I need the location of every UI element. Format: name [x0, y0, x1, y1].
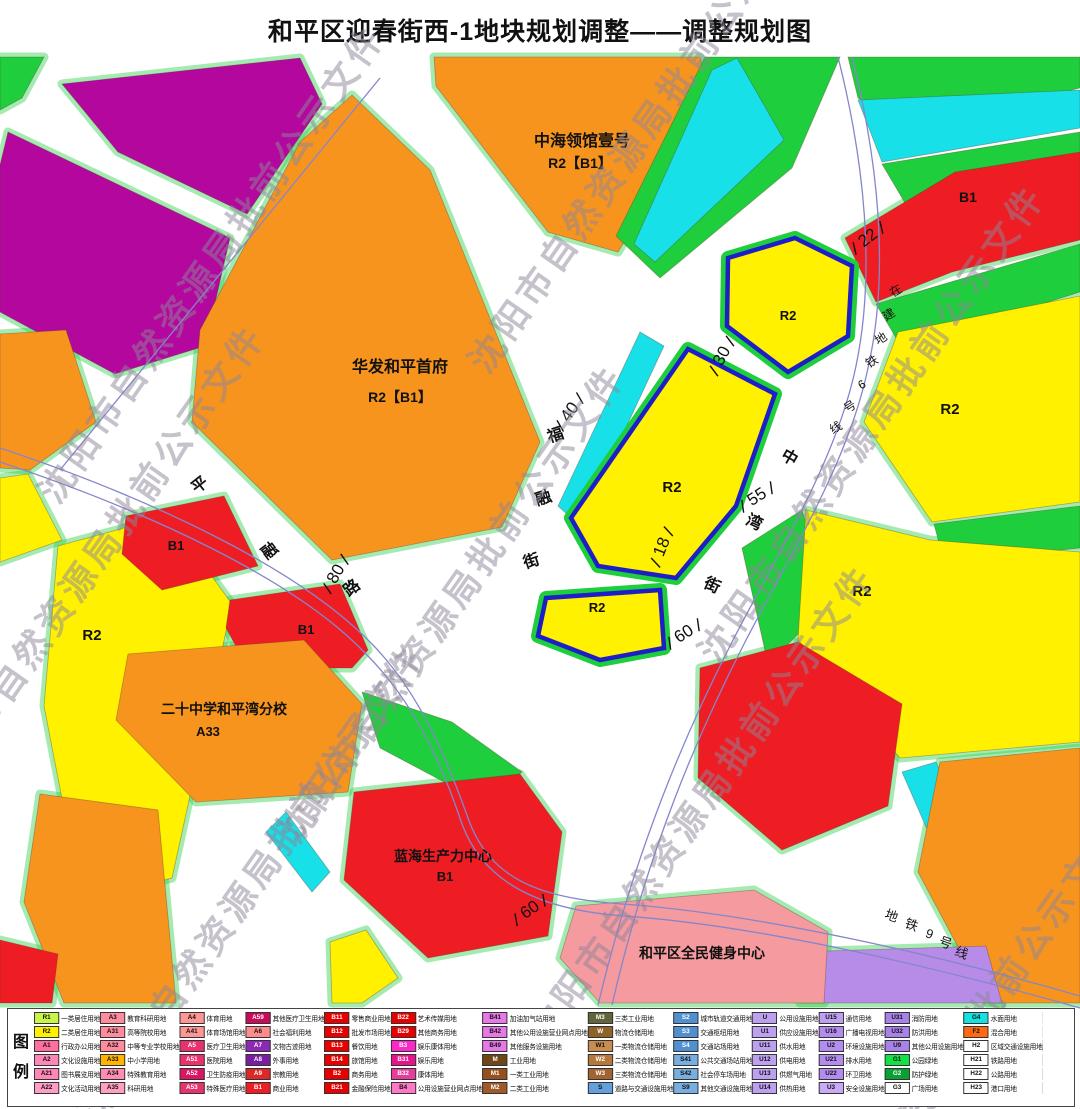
legend-item: G1公园绿地: [884, 1054, 963, 1066]
legend-item: B1商业用地: [245, 1082, 324, 1094]
legend-label: 文化活动用地: [61, 1083, 100, 1093]
page-title: 和平区迎春街西-1地块规划调整——调整规划图: [0, 12, 1080, 48]
legend-item: U11供水用地: [752, 1040, 818, 1052]
legend-item: F2混合用地: [964, 1026, 1043, 1038]
legend-swatch-A9: A9: [245, 1068, 270, 1080]
legend-title-char: 例: [13, 1065, 29, 1081]
legend-swatch-B3: B3: [391, 1040, 416, 1052]
parcel-label: 中海领馆壹号: [534, 131, 630, 150]
legend-swatch-B32: B32: [391, 1068, 416, 1080]
legend-label: 其他交通设施用地: [700, 1083, 752, 1093]
legend-label: 零售商业用地: [352, 1013, 391, 1023]
legend-item: S42社会停车场用地: [673, 1068, 752, 1080]
legend-swatch-G1: G1: [884, 1054, 909, 1066]
legend-swatch-S4: S4: [673, 1040, 698, 1052]
legend-label: 加油加气站用地: [510, 1013, 555, 1023]
legend-swatch-F2: F2: [964, 1026, 989, 1038]
street-label: 融: [533, 487, 554, 509]
legend-item: B3娱乐康体用地: [391, 1040, 483, 1052]
legend-item: B11零售商业用地: [324, 1012, 390, 1024]
dimension-tick: [577, 392, 584, 403]
legend-item: U31消防用地: [884, 1012, 963, 1024]
parcel-label: B1: [298, 622, 315, 637]
legend-label: 社会福利用地: [272, 1027, 311, 1037]
legend-swatch-A31: A31: [100, 1026, 125, 1038]
legend-label: 消防用地: [912, 1013, 938, 1023]
cyan-band: [266, 812, 330, 892]
legend-swatch-A52: A52: [179, 1068, 204, 1080]
street-label: 中: [778, 445, 801, 469]
legend-item: A32中等专业学校用地: [100, 1040, 179, 1052]
legend-swatch-B21: B21: [324, 1082, 349, 1094]
legend-swatch-B42: B42: [483, 1026, 508, 1038]
legend-column: B11零售商业用地B12批发市场用地B13餐饮用地B14旅馆用地B2商务用地B2…: [324, 1012, 390, 1104]
legend-item: S9其他交通设施用地: [673, 1082, 752, 1094]
legend-item: S3交通枢纽用地: [673, 1026, 752, 1038]
legend-column: A59其他医疗卫生用地A6社会福利用地A7文物古迹用地A8外事用地A9宗教用地B…: [245, 1012, 324, 1104]
street-label: 融: [258, 539, 282, 563]
legend-label: 餐饮用地: [352, 1041, 378, 1051]
legend-label: 图书展览用地: [61, 1069, 100, 1079]
legend-label: 体育场馆用地: [206, 1027, 245, 1037]
metro-label: 地: [883, 906, 900, 925]
legend-swatch-A33: A33: [100, 1054, 125, 1066]
parcel-label: B1: [959, 189, 977, 205]
legend-label: 供热用地: [779, 1083, 805, 1093]
legend-item: U32防洪用地: [884, 1026, 963, 1038]
legend-item: S41公共交通场站用地: [673, 1054, 752, 1066]
legend-swatch-M3: M3: [588, 1012, 613, 1024]
legend-label: 一类工业用地: [510, 1069, 549, 1079]
legend-label: 医疗卫生用地: [206, 1041, 245, 1051]
legend-item: M3三类工业用地: [588, 1012, 674, 1024]
legend-item: U14供热用地: [752, 1082, 818, 1094]
legend-swatch-H22: H22: [964, 1068, 989, 1080]
road-width-label: 60: [671, 620, 697, 646]
legend-swatch-A1: A1: [34, 1040, 59, 1052]
legend-label: 供水用地: [779, 1041, 805, 1051]
legend-column: U15通信用地U16广播电视用地U2环境设施用地U21排水用地U22环卫用地U3…: [818, 1012, 884, 1104]
legend-label: 其他医疗卫生用地: [272, 1013, 324, 1023]
legend-label: 交通站场用地: [700, 1041, 739, 1051]
legend-label: 教育科研用地: [127, 1013, 166, 1023]
legend-swatch-B12: B12: [324, 1026, 349, 1038]
legend-label: 其他公用设施用地: [912, 1041, 964, 1051]
legend-label: 三类工业用地: [615, 1013, 654, 1023]
legend-label: 社会停车场用地: [700, 1069, 745, 1079]
legend-label: 二类居住用地: [61, 1027, 100, 1037]
legend-item: A9宗教用地: [245, 1068, 324, 1080]
legend-item: H23港口用地: [964, 1082, 1043, 1094]
metro-label: 9: [924, 925, 936, 942]
legend-item: W3三类物流仓储用地: [588, 1068, 674, 1080]
legend-label: 卫生防疫用地: [206, 1069, 245, 1079]
legend-item: U公用设施用地: [752, 1012, 818, 1024]
legend-item: U2环境设施用地: [818, 1040, 884, 1052]
legend-swatch-U: U: [752, 1012, 777, 1024]
parcel-label: R2: [780, 308, 797, 323]
planning-map: 中海领馆壹号R2【B1】华发和平首府R2【B1】R2R2R2R2R2R2B1B1…: [0, 0, 1080, 1109]
legend-item: B41加油加气站用地: [483, 1012, 588, 1024]
legend-item: W物流仓储用地: [588, 1026, 674, 1038]
legend-label: 特殊教育用地: [127, 1069, 166, 1079]
parcel-yellow-bl: [330, 930, 398, 1003]
street-label: 街: [520, 549, 542, 572]
legend-label: 区域交通设施用地: [991, 1041, 1043, 1051]
legend-item: U22环卫用地: [818, 1068, 884, 1080]
legend-swatch-H2: H2: [964, 1040, 989, 1052]
legend-label: 公路用地: [991, 1069, 1017, 1079]
legend-item: B21金融保险用地: [324, 1082, 390, 1094]
legend-swatch-B41: B41: [483, 1012, 508, 1024]
legend-swatch-B1: B1: [245, 1082, 270, 1094]
legend-item: U12供电用地: [752, 1054, 818, 1066]
legend-swatch-B14: B14: [324, 1054, 349, 1066]
legend-column: U公用设施用地U1供应设施用地U11供水用地U12供电用地U13供燃气用地U14…: [752, 1012, 818, 1104]
legend-item: A3教育科研用地: [100, 1012, 179, 1024]
dimension-tick: [697, 618, 699, 631]
legend-item: S道路与交通设施用地: [588, 1082, 674, 1094]
legend-label: 科研用地: [127, 1083, 153, 1093]
legend-item: B12批发市场用地: [324, 1026, 390, 1038]
legend-swatch-U13: U13: [752, 1068, 777, 1080]
legend-swatch-R1: R1: [34, 1012, 59, 1024]
legend-label: 三类物流仓储用地: [615, 1069, 667, 1079]
legend-column: G4水面用地F2混合用地H2区域交通设施用地H21铁路用地H22公路用地H23港…: [964, 1012, 1043, 1104]
legend-item: S2城市轨道交通用地: [673, 1012, 752, 1024]
legend-item: U15通信用地: [818, 1012, 884, 1024]
legend-swatch-U1: U1: [752, 1026, 777, 1038]
legend-label: 城市轨道交通用地: [700, 1013, 752, 1023]
legend-item: A53特殊医疗用地: [179, 1082, 245, 1094]
legend-swatch-A51: A51: [179, 1054, 204, 1066]
legend-item: B49其他服务设施用地: [483, 1040, 588, 1052]
legend-label: 文化设施用地: [61, 1055, 100, 1065]
legend-swatch-U9: U9: [884, 1040, 909, 1052]
legend-label: 高等院校用地: [127, 1027, 166, 1037]
legend-label: 二类工业用地: [510, 1083, 549, 1093]
legend-swatch-A21: A21: [34, 1068, 59, 1080]
legend-swatch-U22: U22: [818, 1068, 843, 1080]
legend-label: 艺术传媒用地: [418, 1013, 457, 1023]
legend-swatch-M1: M1: [483, 1068, 508, 1080]
legend-swatch-S: S: [588, 1082, 613, 1094]
legend-swatch-U11: U11: [752, 1040, 777, 1052]
legend-swatch-A3: A3: [100, 1012, 125, 1024]
metro-label: 6: [855, 377, 868, 393]
legend-swatch-G3: G3: [884, 1082, 909, 1094]
legend-swatch-S9: S9: [673, 1082, 698, 1094]
legend-swatch-U12: U12: [752, 1054, 777, 1066]
legend-label: 其他商务用地: [418, 1027, 457, 1037]
legend-label: 工业用地: [510, 1055, 536, 1065]
legend-column: M3三类工业用地W物流仓储用地W1一类物流仓储用地W2二类物流仓储用地W3三类物…: [588, 1012, 674, 1104]
legend-swatch-A8: A8: [245, 1054, 270, 1066]
legend-label: 安全设施用地: [846, 1083, 885, 1093]
legend-label: 医院用地: [206, 1055, 232, 1065]
legend-item: B29其他商务用地: [391, 1026, 483, 1038]
legend-label: 环境设施用地: [846, 1041, 885, 1051]
legend-item: B22艺术传媒用地: [391, 1012, 483, 1024]
legend-swatch-W3: W3: [588, 1068, 613, 1080]
legend-item: M2二类工业用地: [483, 1082, 588, 1094]
legend-label: 娱乐用地: [418, 1055, 444, 1065]
legend-item: W2二类物流仓储用地: [588, 1054, 674, 1066]
legend-swatch-G4: G4: [964, 1012, 989, 1024]
legend-column: S2城市轨道交通用地S3交通枢纽用地S4交通站场用地S41公共交通场站用地S42…: [673, 1012, 752, 1104]
legend-label: 商务用地: [352, 1069, 378, 1079]
legend-item: A5医疗卫生用地: [179, 1040, 245, 1052]
legend-item: A4体育用地: [179, 1012, 245, 1024]
street-label: 福: [544, 423, 566, 446]
legend-item: A6社会福利用地: [245, 1026, 324, 1038]
legend-item: A8外事用地: [245, 1054, 324, 1066]
legend-swatch-S42: S42: [673, 1068, 698, 1080]
legend-swatch-U14: U14: [752, 1082, 777, 1094]
legend-item: U13供燃气用地: [752, 1068, 818, 1080]
legend-item: A59其他医疗卫生用地: [245, 1012, 324, 1024]
legend-swatch-H23: H23: [964, 1082, 989, 1094]
legend-swatch-B4: B4: [391, 1082, 416, 1094]
legend-label: 交通枢纽用地: [700, 1027, 739, 1037]
road-width-label: 40: [556, 399, 582, 425]
legend-item: A33中小学用地: [100, 1054, 179, 1066]
legend-label: 商业用地: [272, 1083, 298, 1093]
parcel-label: R2【B1】: [368, 389, 432, 405]
legend-item: H2区域交通设施用地: [964, 1040, 1043, 1052]
legend-swatch-A35: A35: [100, 1082, 125, 1094]
legend-item: R1一类居住用地: [34, 1012, 100, 1024]
legend-label: 防护绿地: [912, 1069, 938, 1079]
legend-swatch-U21: U21: [818, 1054, 843, 1066]
legend-item: R2二类居住用地: [34, 1026, 100, 1038]
legend-item: G3广场用地: [884, 1082, 963, 1094]
legend-label: 公共交通场站用地: [700, 1055, 752, 1065]
legend-label: 环卫用地: [846, 1069, 872, 1079]
legend-item: U21排水用地: [818, 1054, 884, 1066]
legend-label: 其他服务设施用地: [510, 1041, 562, 1051]
legend-label: 物流仓储用地: [615, 1027, 654, 1037]
legend-swatch-U16: U16: [818, 1026, 843, 1038]
legend-swatch-W2: W2: [588, 1054, 613, 1066]
legend-item: B32康体用地: [391, 1068, 483, 1080]
legend-item: U9其他公用设施用地: [884, 1040, 963, 1052]
legend-label: 行政办公用地: [61, 1041, 100, 1051]
legend-label: 娱乐康体用地: [418, 1041, 457, 1051]
legend-swatch-M2: M2: [483, 1082, 508, 1094]
parcel-label: R2: [940, 401, 959, 418]
legend-label: 一类居住用地: [61, 1013, 100, 1023]
legend-column: B41加油加气站用地B42其他公用设施营业网点用地B49其他服务设施用地M工业用…: [483, 1012, 588, 1104]
legend-swatch-W: W: [588, 1026, 613, 1038]
legend-label: 批发市场用地: [352, 1027, 391, 1037]
legend-item: B2商务用地: [324, 1068, 390, 1080]
legend-label: 其他公用设施营业网点用地: [510, 1027, 588, 1037]
legend-label: 公用设施用地: [779, 1013, 818, 1023]
legend-item: A31高等院校用地: [100, 1026, 179, 1038]
legend-label: 排水用地: [846, 1055, 872, 1065]
legend: 图 例 R1一类居住用地R2二类居住用地A1行政办公用地A2文化设施用地A21图…: [7, 1008, 1075, 1107]
legend-label: 康体用地: [418, 1069, 444, 1079]
legend-swatch-B22: B22: [391, 1012, 416, 1024]
legend-swatch-A22: A22: [34, 1082, 59, 1094]
legend-swatch-G2: G2: [884, 1068, 909, 1080]
legend-label: 供电用地: [779, 1055, 805, 1065]
legend-column: A4体育用地A41体育场馆用地A5医疗卫生用地A51医院用地A52卫生防疫用地A…: [179, 1012, 245, 1104]
legend-swatch-B29: B29: [391, 1026, 416, 1038]
parcel-label: R2: [589, 600, 606, 615]
legend-title: 图 例: [8, 1009, 34, 1106]
legend-swatch-U3: U3: [818, 1082, 843, 1094]
legend-label: 中等专业学校用地: [127, 1041, 179, 1051]
legend-swatch-W1: W1: [588, 1040, 613, 1052]
metro-label: 线: [827, 418, 845, 436]
planning-map-page: 和平区迎春街西-1地块规划调整——调整规划图: [0, 0, 1080, 1109]
dimension-tick: [770, 481, 772, 494]
legend-swatch-A6: A6: [245, 1026, 270, 1038]
legend-label: 公园绿地: [912, 1055, 938, 1065]
legend-swatch-A59: A59: [245, 1012, 270, 1024]
legend-swatch-A7: A7: [245, 1040, 270, 1052]
legend-swatch-R2: R2: [34, 1026, 59, 1038]
legend-label: 特殊医疗用地: [206, 1083, 245, 1093]
parcel-label: R2【B1】: [548, 155, 612, 171]
legend-swatch-A2: A2: [34, 1054, 59, 1066]
legend-swatch-A4: A4: [179, 1012, 204, 1024]
legend-item: A52卫生防疫用地: [179, 1068, 245, 1080]
legend-label: 通信用地: [846, 1013, 872, 1023]
legend-swatch-H21: H21: [964, 1054, 989, 1066]
parcel-label: B1: [168, 538, 185, 553]
legend-item: A22文化活动用地: [34, 1082, 100, 1094]
legend-item: B13餐饮用地: [324, 1040, 390, 1052]
legend-swatch-U31: U31: [884, 1012, 909, 1024]
legend-label: 中小学用地: [127, 1055, 159, 1065]
legend-swatch-B49: B49: [483, 1040, 508, 1052]
parcel-lanhai: [344, 774, 562, 958]
legend-swatch-B2: B2: [324, 1068, 349, 1080]
legend-label: 混合用地: [991, 1027, 1017, 1037]
parcel-label: R2: [852, 583, 871, 600]
legend-label: 旅馆用地: [352, 1055, 378, 1065]
legend-swatch-B13: B13: [324, 1040, 349, 1052]
legend-grid: R1一类居住用地R2二类居住用地A1行政办公用地A2文化设施用地A21图书展览用…: [34, 1009, 1043, 1106]
legend-item: A1行政办公用地: [34, 1040, 100, 1052]
parcel-label: B1: [437, 869, 454, 884]
legend-item: G4水面用地: [964, 1012, 1043, 1024]
legend-item: A35科研用地: [100, 1082, 179, 1094]
legend-item: G2防护绿地: [884, 1068, 963, 1080]
legend-item: U16广播电视用地: [818, 1026, 884, 1038]
parcel-label: R2: [82, 627, 101, 644]
legend-swatch-U2: U2: [818, 1040, 843, 1052]
legend-column: R1一类居住用地R2二类居住用地A1行政办公用地A2文化设施用地A21图书展览用…: [34, 1012, 100, 1104]
parcel-label: 二十中学和平湾分校: [161, 701, 288, 717]
legend-item: B31娱乐用地: [391, 1054, 483, 1066]
legend-item: B4公用设施营业网点用地: [391, 1082, 483, 1094]
legend-item: B42其他公用设施营业网点用地: [483, 1026, 588, 1038]
legend-swatch-A5: A5: [179, 1040, 204, 1052]
legend-swatch-A34: A34: [100, 1068, 125, 1080]
legend-item: A34特殊教育用地: [100, 1068, 179, 1080]
legend-item: H21铁路用地: [964, 1054, 1043, 1066]
legend-swatch-A32: A32: [100, 1040, 125, 1052]
legend-swatch-S3: S3: [673, 1026, 698, 1038]
legend-label: 公用设施营业网点用地: [418, 1083, 483, 1093]
metro-label: 铁: [903, 915, 920, 934]
legend-title-char: 图: [13, 1035, 29, 1051]
legend-swatch-S2: S2: [673, 1012, 698, 1024]
street-label: 平: [188, 473, 212, 497]
parcel-label: 华发和平首府: [352, 357, 448, 376]
legend-swatch-M: M: [483, 1054, 508, 1066]
legend-swatch-A53: A53: [179, 1082, 204, 1094]
legend-swatch-U32: U32: [884, 1026, 909, 1038]
parcel-label: A33: [196, 724, 220, 739]
legend-item: S4交通站场用地: [673, 1040, 752, 1052]
legend-label: 铁路用地: [991, 1055, 1017, 1065]
legend-label: 文物古迹用地: [272, 1041, 311, 1051]
legend-item: A51医院用地: [179, 1054, 245, 1066]
legend-label: 道路与交通设施用地: [615, 1083, 673, 1093]
legend-label: 水面用地: [991, 1013, 1017, 1023]
legend-swatch-S41: S41: [673, 1054, 698, 1066]
legend-label: 金融保险用地: [352, 1083, 391, 1093]
legend-label: 宗教用地: [272, 1069, 298, 1079]
legend-label: 一类物流仓储用地: [615, 1041, 667, 1051]
legend-label: 体育用地: [206, 1013, 232, 1023]
legend-label: 广场用地: [912, 1083, 938, 1093]
legend-label: 广播电视用地: [846, 1027, 885, 1037]
legend-label: 供应设施用地: [779, 1027, 818, 1037]
legend-item: U3安全设施用地: [818, 1082, 884, 1094]
legend-swatch-A41: A41: [179, 1026, 204, 1038]
legend-column: U31消防用地U32防洪用地U9其他公用设施用地G1公园绿地G2防护绿地G3广场…: [884, 1012, 963, 1104]
parcel-label: R2: [662, 479, 681, 496]
legend-label: 供燃气用地: [779, 1069, 811, 1079]
legend-column: B22艺术传媒用地B29其他商务用地B3娱乐康体用地B31娱乐用地B32康体用地…: [391, 1012, 483, 1104]
legend-label: 防洪用地: [912, 1027, 938, 1037]
legend-swatch-B11: B11: [324, 1012, 349, 1024]
legend-item: H22公路用地: [964, 1068, 1043, 1080]
metro-label: 铁: [863, 352, 881, 370]
legend-swatch-U15: U15: [818, 1012, 843, 1024]
legend-item: M工业用地: [483, 1054, 588, 1066]
legend-label: 港口用地: [991, 1083, 1017, 1093]
legend-item: A7文物古迹用地: [245, 1040, 324, 1052]
legend-item: A21图书展览用地: [34, 1068, 100, 1080]
parcel-label: 和平区全民健身中心: [639, 945, 765, 961]
legend-label: 外事用地: [272, 1055, 298, 1065]
legend-column: A3教育科研用地A31高等院校用地A32中等专业学校用地A33中小学用地A34特…: [100, 1012, 179, 1104]
street-label: 湾: [743, 510, 766, 534]
legend-item: W1一类物流仓储用地: [588, 1040, 674, 1052]
legend-item: M1一类工业用地: [483, 1068, 588, 1080]
legend-item: U1供应设施用地: [752, 1026, 818, 1038]
legend-label: 二类物流仓储用地: [615, 1055, 667, 1065]
legend-item: A41体育场馆用地: [179, 1026, 245, 1038]
parcel-label: 蓝海生产力中心: [394, 848, 492, 864]
street-label: 街: [700, 573, 723, 597]
legend-item: A2文化设施用地: [34, 1054, 100, 1066]
legend-item: B14旅馆用地: [324, 1054, 390, 1066]
legend-swatch-B31: B31: [391, 1054, 416, 1066]
